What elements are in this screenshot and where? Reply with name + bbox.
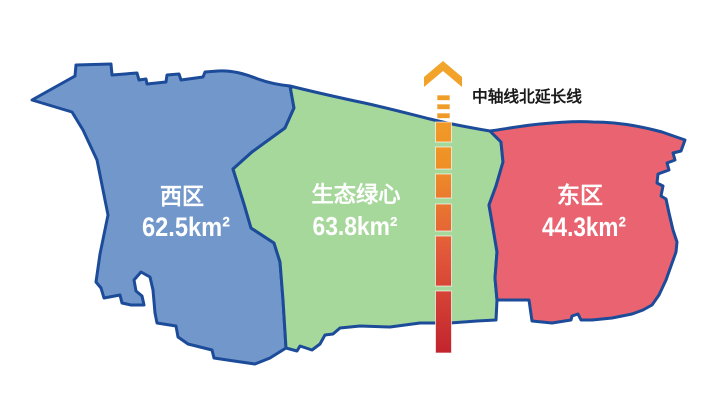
west-district-name: 西区 xyxy=(160,183,204,209)
axis-label: 中轴线北延长线 xyxy=(472,87,582,106)
district-map-infographic: 中轴线北延长线 西区 62.5km² 生态绿心 63.8km² 东区 44.3k… xyxy=(0,0,718,407)
ecological-green-heart-area: 63.8km² xyxy=(313,211,398,241)
west-district-area: 62.5km² xyxy=(142,212,230,242)
axis-dashed-line xyxy=(436,95,452,353)
ecological-green-heart-labels: 生态绿心 63.8km² xyxy=(312,182,401,241)
east-district-area: 44.3km² xyxy=(542,212,626,242)
ecological-green-heart-name: 生态绿心 xyxy=(312,182,401,207)
east-district-name: 东区 xyxy=(557,182,603,208)
axis-north-arrow-icon xyxy=(424,61,462,87)
map-canvas: 中轴线北延长线 西区 62.5km² 生态绿心 63.8km² 东区 44.3k… xyxy=(0,0,718,407)
